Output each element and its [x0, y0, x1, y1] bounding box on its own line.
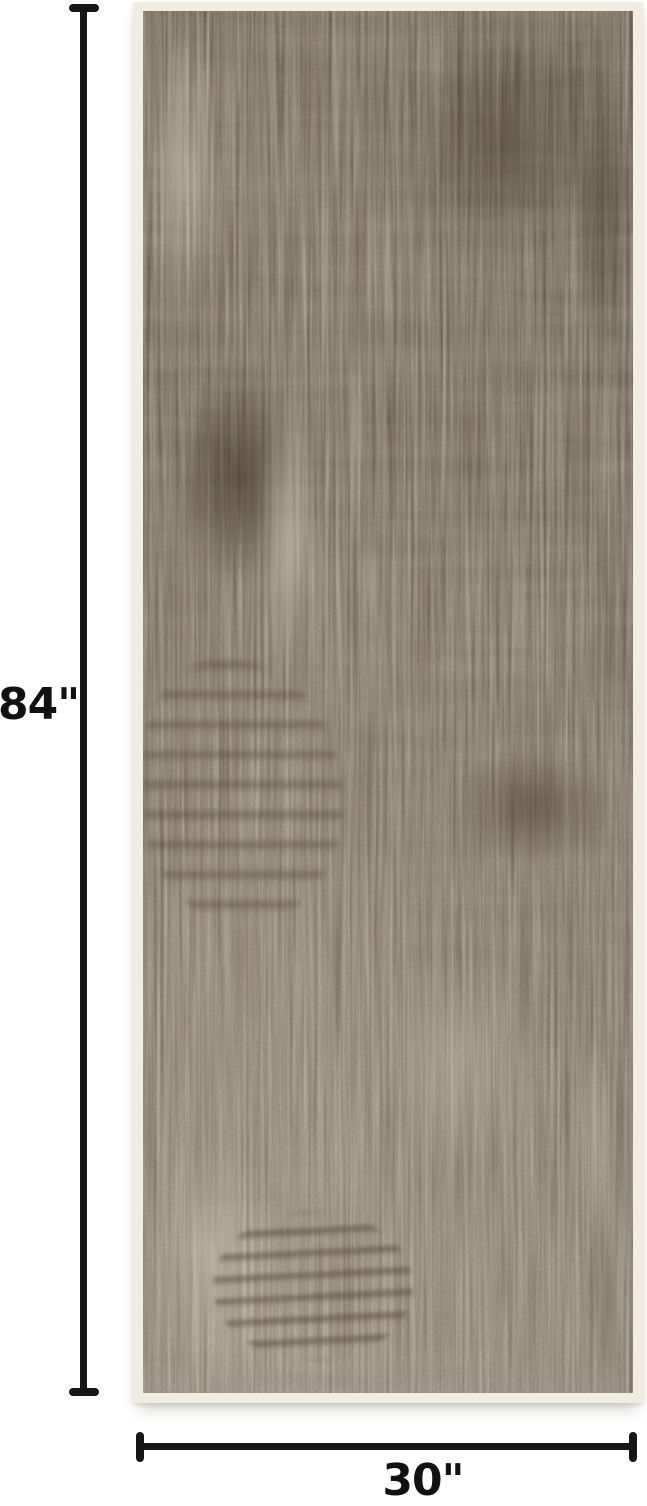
rug-texture-patch: [143, 31, 223, 311]
rug-texture-patch: [213, 1211, 413, 1361]
height-dimension-cap-bottom: [69, 1388, 99, 1396]
height-dimension-label: 84": [0, 683, 74, 727]
product-dimension-image: 84" 30": [0, 0, 647, 1500]
rug-texture-patch: [373, 941, 543, 1171]
width-dimension-line: [140, 1443, 633, 1450]
rug-texture-patch: [443, 746, 623, 866]
height-dimension-line: [80, 8, 87, 1392]
width-dimension-cap-right: [629, 1432, 637, 1462]
rug-texture-patch: [573, 31, 633, 361]
rug-texture-patch: [258, 391, 318, 681]
rug-image: [133, 2, 643, 1403]
width-dimension-label: 30": [348, 1459, 498, 1503]
rug-texture: [143, 11, 633, 1393]
